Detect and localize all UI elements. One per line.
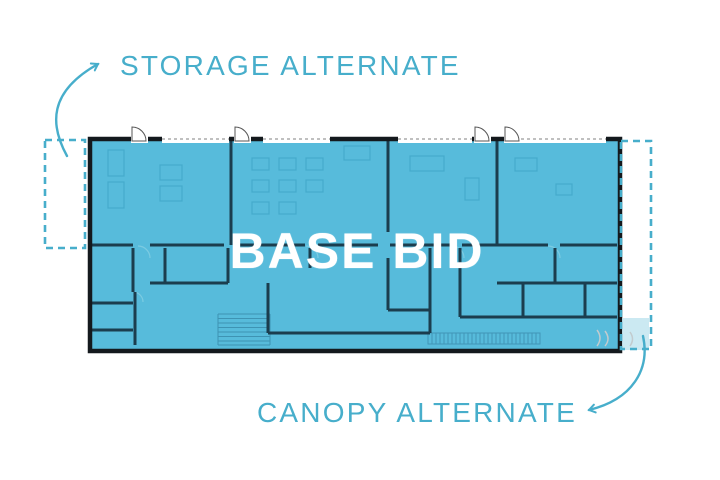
canopy-alternate-label: CANOPY ALTERNATE <box>257 397 577 429</box>
floor-plan-figure: STORAGE ALTERNATE BASE BID CANOPY ALTERN… <box>0 0 720 480</box>
base-bid-label: BASE BID <box>212 222 502 280</box>
canopy-alternate-region <box>621 141 651 349</box>
storage-alternate-label: STORAGE ALTERNATE <box>120 50 461 82</box>
storage-alternate-region <box>45 140 85 248</box>
